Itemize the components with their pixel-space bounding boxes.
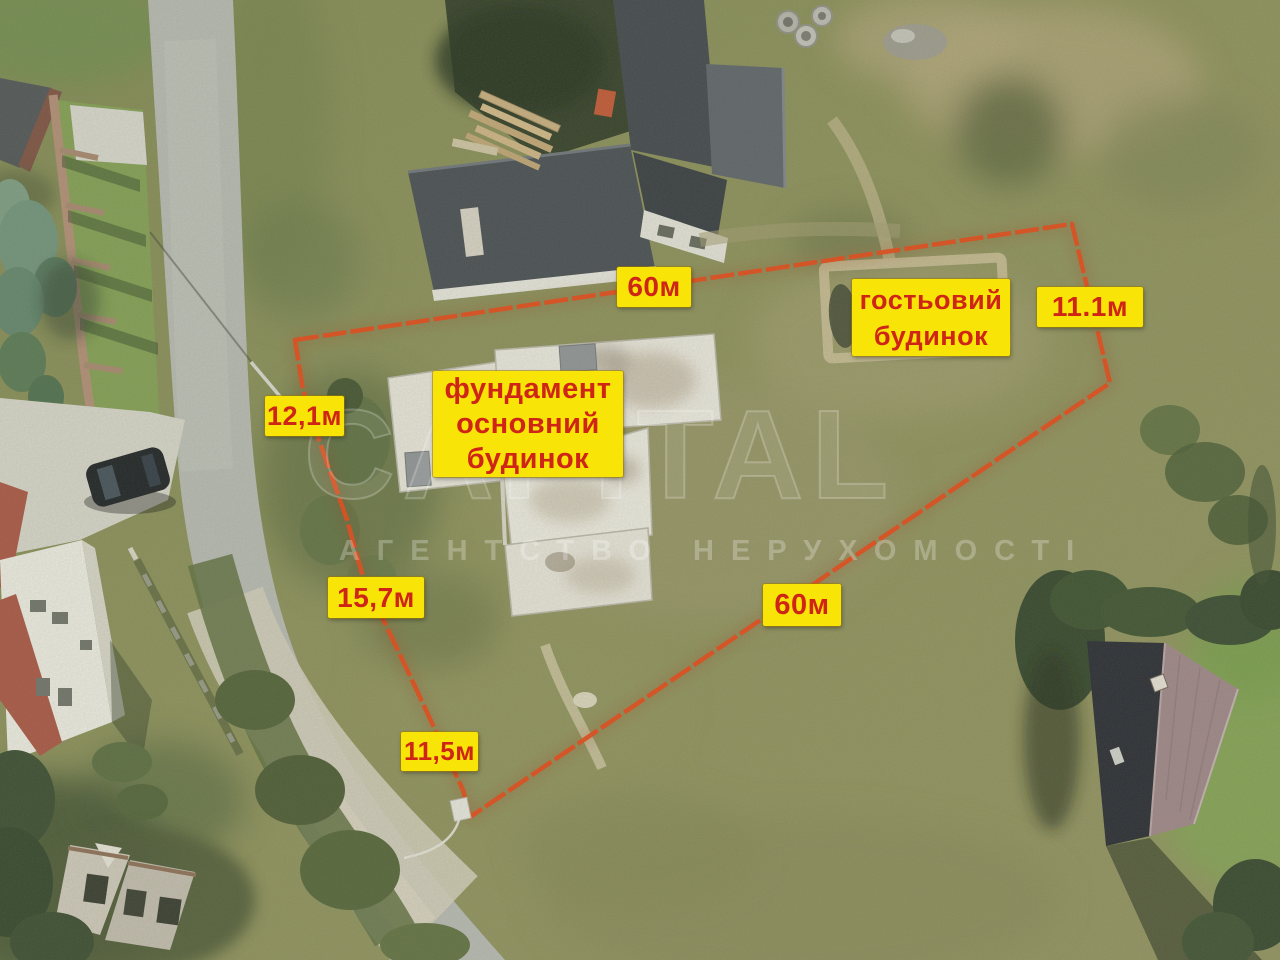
label-bottom-side-length: 60м [763, 584, 841, 626]
photo-grain-light [0, 0, 1280, 960]
label-top-side-length: 60м [617, 267, 691, 307]
label-left-middle-length: 15,7м [328, 577, 424, 618]
label-main-foundation: фундамент основний будинок [433, 371, 623, 477]
aerial-scene [0, 0, 1280, 960]
label-guest-house: гостьовий будинок [852, 279, 1010, 356]
label-left-lower-length: 11,5м [401, 732, 478, 771]
label-left-upper-length: 12,1м [265, 396, 344, 436]
aerial-plot-photo: CAPITAL АГЕНТСТВО НЕРУХОМОСТІ 60м гостьо… [0, 0, 1280, 960]
label-right-side-length: 11.1м [1037, 287, 1143, 327]
